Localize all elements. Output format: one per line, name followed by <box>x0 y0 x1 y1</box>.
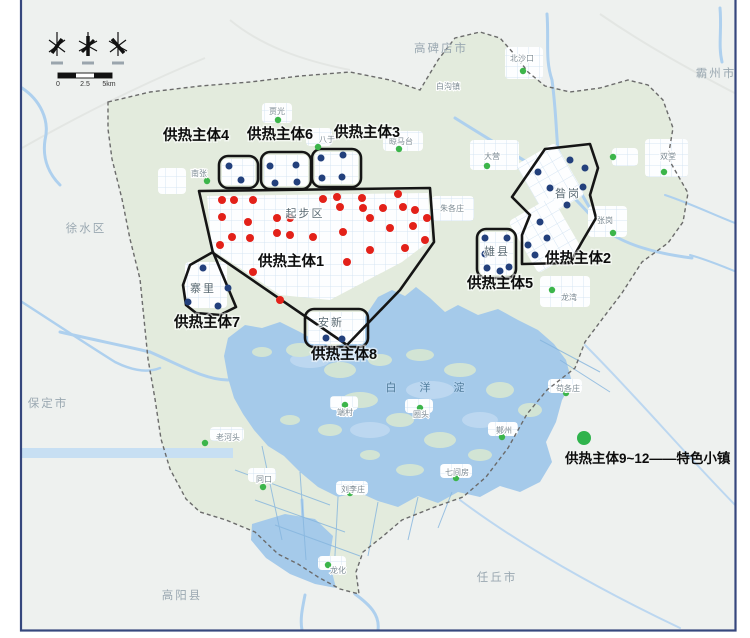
area-label: 雄县 <box>484 244 510 258</box>
heat-source-dot <box>379 204 387 212</box>
town-label: 龙化 <box>330 565 346 575</box>
planning-map-screenshot: 高碑店市霸州市徐水区保定市高阳县任丘市 北沙口白沟镇贾光八于晾马台南张双堂大营朱… <box>0 0 750 638</box>
heating-plan-map: 高碑店市霸州市徐水区保定市高阳县任丘市 北沙口白沟镇贾光八于晾马台南张双堂大营朱… <box>0 0 750 638</box>
heat-source-dot <box>244 218 252 226</box>
entity-dot <box>482 235 489 242</box>
scale-tick-label: 0 <box>56 81 60 88</box>
entity-label: 供热主体2 <box>544 249 611 267</box>
heat-source-dot <box>336 203 344 211</box>
heat-source-dot <box>358 194 366 202</box>
entity-dot <box>497 268 504 275</box>
town-label: 八于 <box>319 135 335 144</box>
heat-source-dot <box>401 244 409 252</box>
legend-text: 供热主体9~12——特色小镇 <box>564 450 731 466</box>
scale-tick-label: 5km <box>102 81 115 88</box>
entity-dot <box>215 303 222 310</box>
town-dot <box>610 154 616 160</box>
town-dot <box>275 117 281 123</box>
region-label: 任丘市 <box>477 570 518 584</box>
town-dot <box>610 230 616 236</box>
entity-label: 供热主体4 <box>162 126 229 144</box>
entity-dot <box>200 265 207 272</box>
scale-tick-label: 2.5 <box>80 81 90 88</box>
town-dot <box>484 163 490 169</box>
west-canal-band <box>21 448 233 458</box>
entity-dot <box>506 264 513 271</box>
entity-label: 供热主体1 <box>257 252 324 270</box>
region-label: 保定市 <box>28 396 69 410</box>
entity-dot <box>564 202 571 209</box>
area-label: 安新 <box>318 315 344 329</box>
town-dot <box>396 146 402 152</box>
town-label: 大营 <box>484 151 500 161</box>
entity-dot <box>272 180 279 187</box>
entity-dot <box>340 152 347 159</box>
town-label: 圈头 <box>413 409 429 419</box>
town-label: 端村 <box>337 407 353 417</box>
town-dot <box>661 169 667 175</box>
area-label: 昝岗 <box>555 186 581 200</box>
heat-source-dot <box>286 231 294 239</box>
heat-source-dot <box>399 203 407 211</box>
heat-source-dot <box>409 222 417 230</box>
town-dot <box>520 68 526 74</box>
entity-dot <box>532 252 539 259</box>
entity-dot <box>318 155 325 162</box>
town-label: 朱各庄 <box>440 203 464 213</box>
town-dot <box>260 484 266 490</box>
heat-source-dot <box>249 268 257 276</box>
entity-dot <box>525 242 532 249</box>
town-label: 刘李庄 <box>341 484 365 494</box>
entity-label: 供热主体7 <box>173 313 240 331</box>
heat-source-dot <box>228 233 236 241</box>
heat-source-dot <box>366 246 374 254</box>
region-label: 霸州市 <box>696 66 737 80</box>
town-label: 白沟镇 <box>436 81 460 91</box>
entity-dot <box>339 174 346 181</box>
lake-label: 白 洋 淀 <box>385 380 474 394</box>
town-dot <box>204 178 210 184</box>
town-label: 鄚州 <box>496 425 512 435</box>
region-label: 徐水区 <box>66 221 107 235</box>
entity-label: 供热主体6 <box>246 125 313 143</box>
town-label: 七间房 <box>445 467 469 477</box>
entity-dot <box>267 163 274 170</box>
heat-source-dot <box>218 213 226 221</box>
entity-label: 供热主体8 <box>310 345 377 363</box>
entity-dot <box>319 175 326 182</box>
heat-source-dot <box>276 296 284 304</box>
heat-source-dot <box>394 190 402 198</box>
entity-dot <box>567 157 574 164</box>
heat-source-dot <box>273 229 281 237</box>
town-label: 张岗 <box>597 216 613 225</box>
entity-dot <box>323 335 330 342</box>
heat-source-dot <box>216 241 224 249</box>
entity-dot <box>339 336 346 343</box>
entity-dot <box>225 285 232 292</box>
heat-source-dot <box>421 236 429 244</box>
heat-source-dot <box>218 196 226 204</box>
heat-source-dot <box>273 214 281 222</box>
town-label: 龙湾 <box>561 292 577 302</box>
heat-source-dot <box>309 233 317 241</box>
heat-source-dot <box>366 214 374 222</box>
heat-source-dot <box>359 204 367 212</box>
town-dot <box>202 440 208 446</box>
entity-label: 供热主体5 <box>466 274 533 292</box>
heat-source-dot <box>343 258 351 266</box>
entity-dot <box>238 177 245 184</box>
heat-source-dot <box>249 196 257 204</box>
entity-dot <box>537 219 544 226</box>
entity-dot <box>226 163 233 170</box>
entity-dot <box>185 299 192 306</box>
town-label: 双堂 <box>660 151 676 161</box>
entity-dot <box>582 165 589 172</box>
area-label: 寨里 <box>190 281 216 295</box>
heat-source-dot <box>246 234 254 242</box>
town-label: 贾光 <box>269 106 285 116</box>
heat-source-dot <box>319 195 327 203</box>
town-label: 北沙口 <box>510 54 534 63</box>
town-label: 南张 <box>191 168 207 178</box>
entity-dot <box>484 265 491 272</box>
heat-source-dot <box>411 206 419 214</box>
heat-source-dot <box>230 196 238 204</box>
area-label: 起步区 <box>286 207 325 220</box>
entity-dot <box>504 235 511 242</box>
entity-label: 供热主体3 <box>333 123 400 141</box>
heat-source-dot <box>423 214 431 222</box>
heat-source-dot <box>386 224 394 232</box>
region-label: 高碑店市 <box>414 41 468 55</box>
heat-source-dot <box>333 193 341 201</box>
entity-dot <box>535 169 542 176</box>
town-dot <box>315 144 321 150</box>
heat-source-dot <box>339 228 347 236</box>
town-label: 同口 <box>256 475 272 484</box>
town-label: 老河头 <box>216 432 240 442</box>
entity-dot <box>294 179 301 186</box>
region-label: 高阳县 <box>162 588 203 602</box>
entity-dot <box>293 162 300 169</box>
legend-green-dot-icon <box>577 431 591 445</box>
entity-dot <box>547 185 554 192</box>
town-label: 苟各庄 <box>556 383 580 393</box>
entity-dot <box>544 235 551 242</box>
town-dot <box>549 287 555 293</box>
